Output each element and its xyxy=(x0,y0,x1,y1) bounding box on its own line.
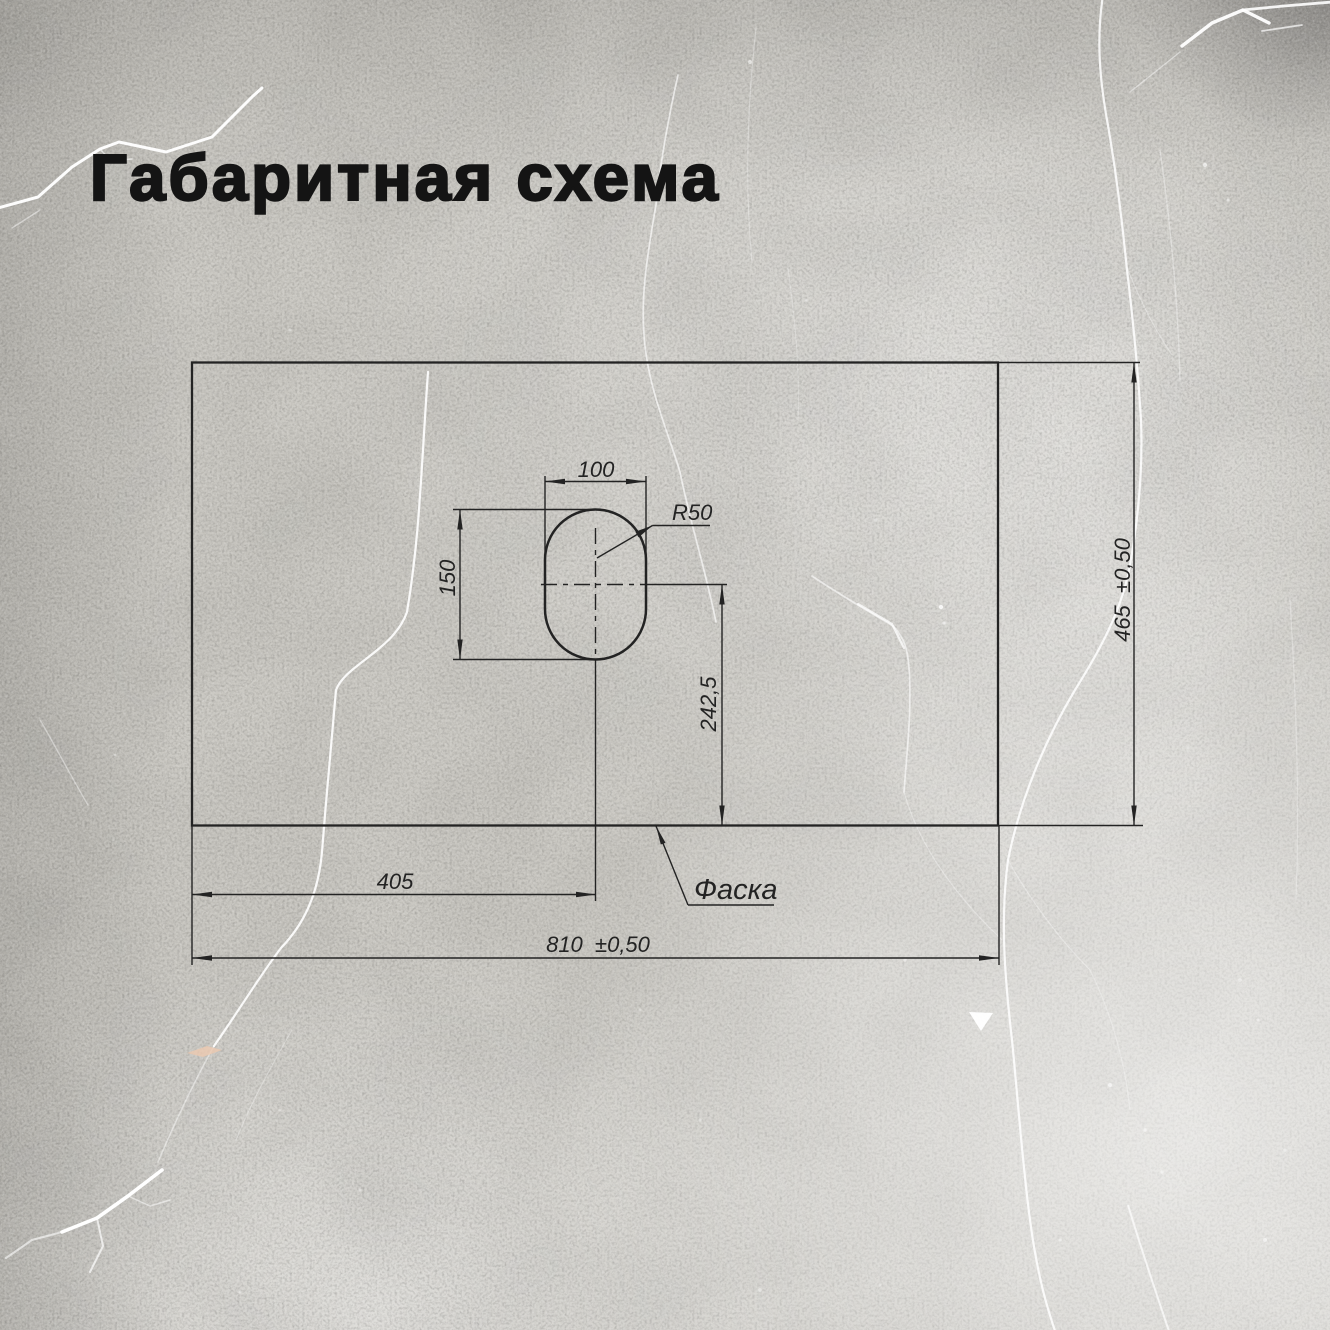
svg-text:810 ±0,50: 810 ±0,50 xyxy=(546,932,651,957)
svg-text:465 ±0,50: 465 ±0,50 xyxy=(1110,537,1135,642)
svg-text:R50: R50 xyxy=(672,500,713,525)
svg-text:405: 405 xyxy=(377,869,414,894)
svg-text:150: 150 xyxy=(435,559,460,596)
svg-text:242,5: 242,5 xyxy=(696,676,721,733)
svg-text:100: 100 xyxy=(578,457,615,482)
svg-text:Фаска: Фаска xyxy=(694,874,778,906)
svg-text:Габаритная схема: Габаритная схема xyxy=(90,141,721,214)
